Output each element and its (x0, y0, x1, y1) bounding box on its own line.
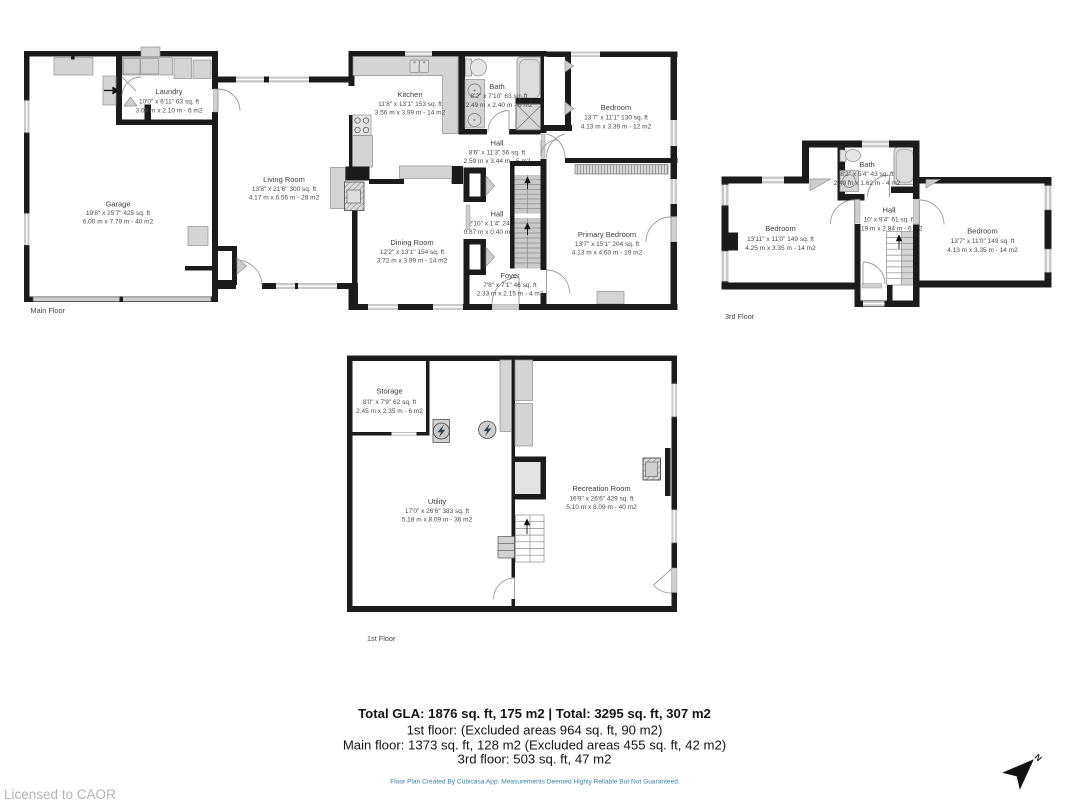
svg-text:Floor Plan Created By Cubicasa: Floor Plan Created By Cubicasa App. Meas… (390, 779, 680, 786)
svg-text:Living Room: Living Room (263, 175, 305, 184)
svg-text:3rd Floor: 3rd Floor (725, 312, 755, 321)
svg-text:13'7" x 11'1" 130 sq. ft: 13'7" x 11'1" 130 sq. ft (584, 115, 648, 122)
svg-text:19'8" x 25'7" 425 sq. ft: 19'8" x 25'7" 425 sq. ft (86, 210, 150, 217)
svg-text:Dining Room: Dining Room (390, 238, 433, 247)
svg-text:5.18 m x 8.09 m - 36 m2: 5.18 m x 8.09 m - 36 m2 (402, 517, 473, 524)
svg-text:6.00 m x 7.79 m - 40 m2: 6.00 m x 7.79 m - 40 m2 (83, 219, 154, 226)
svg-text:Recreation Room: Recreation Room (572, 484, 630, 493)
svg-text:Bedroom: Bedroom (601, 103, 631, 112)
svg-text:4.13 m x 4.60 m - 19 m2: 4.13 m x 4.60 m - 19 m2 (572, 250, 643, 257)
svg-text:Main Floor: Main Floor (31, 306, 66, 315)
svg-text:1st Floor: 1st Floor (367, 634, 396, 643)
svg-text:Primary Bedroom: Primary Bedroom (578, 230, 636, 239)
svg-text:2.45 m x 2.35 m - 6 m2: 2.45 m x 2.35 m - 6 m2 (356, 408, 423, 415)
svg-text:8'6" x 11'3" 56 sq. ft: 8'6" x 11'3" 56 sq. ft (469, 150, 526, 157)
svg-text:Bath: Bath (489, 82, 504, 91)
svg-text:Bedroom: Bedroom (765, 224, 795, 233)
svg-text:2.33 m x 2.15 m - 4 m2: 2.33 m x 2.15 m - 4 m2 (477, 291, 544, 298)
svg-text:4.13 m x 3.35 m - 14 m2: 4.13 m x 3.35 m - 14 m2 (947, 247, 1018, 254)
svg-text:8'2" x 7'10" 63 sq. ft: 8'2" x 7'10" 63 sq. ft (471, 93, 528, 100)
svg-text:13'8" x 21'6" 300 sq. ft: 13'8" x 21'6" 300 sq. ft (252, 186, 316, 193)
svg-text:4.17 m x 6.56 m - 28 m2: 4.17 m x 6.56 m - 28 m2 (249, 195, 320, 202)
svg-text:4.13 m x 3.39 m - 12 m2: 4.13 m x 3.39 m - 12 m2 (581, 124, 652, 131)
svg-text:3.56 m x 3.99 m - 14 m2: 3.56 m x 3.99 m - 14 m2 (375, 110, 446, 117)
svg-text:2.49 m x 2.40 m - 6 m2: 2.49 m x 2.40 m - 6 m2 (466, 102, 533, 109)
svg-text:Utility: Utility (428, 497, 447, 506)
svg-text:16'9" x 26'6" 429 sq. ft: 16'9" x 26'6" 429 sq. ft (569, 496, 633, 503)
svg-text:10' x 9'4" 61 sq. ft: 10' x 9'4" 61 sq. ft (863, 217, 914, 224)
svg-text:Kitchen: Kitchen (397, 90, 422, 99)
svg-text:13'11" x 11'0" 149 sq. ft: 13'11" x 11'0" 149 sq. ft (747, 236, 814, 243)
svg-text:13'7" x 15'1" 204 sq. ft: 13'7" x 15'1" 204 sq. ft (575, 241, 639, 248)
svg-text:3.04 m x 2.10 m - 6 m2: 3.04 m x 2.10 m - 6 m2 (136, 108, 203, 115)
svg-text:17'0" x 26'6" 383 sq. ft: 17'0" x 26'6" 383 sq. ft (405, 508, 469, 515)
svg-text:Laundry: Laundry (155, 87, 182, 96)
svg-text:Bedroom: Bedroom (967, 227, 997, 236)
svg-text:4.25 m x 3.35 m - 14 m2: 4.25 m x 3.35 m - 14 m2 (745, 245, 816, 252)
svg-text:Bath: Bath (859, 160, 874, 169)
svg-text:Storage: Storage (376, 387, 402, 396)
svg-text:10'0" x 6'11" 63 sq. ft: 10'0" x 6'11" 63 sq. ft (139, 99, 199, 106)
svg-text:Hall: Hall (491, 210, 504, 219)
svg-text:8'2" x 5'4" 43 sq. ft: 8'2" x 5'4" 43 sq. ft (840, 171, 894, 178)
svg-text:12'2" x 13'1" 154 sq. ft: 12'2" x 13'1" 154 sq. ft (380, 249, 444, 256)
svg-text:Hall: Hall (883, 206, 896, 215)
svg-text:7'8" x 7'1" 46 sq. ft: 7'8" x 7'1" 46 sq. ft (483, 282, 537, 289)
svg-text:1st floor: (Excluded areas 964: 1st floor: (Excluded areas 964 sq. ft, 9… (407, 722, 663, 737)
svg-text:Main floor: 1373 sq. ft, 128 m: Main floor: 1373 sq. ft, 128 m2 (Exclude… (343, 738, 726, 753)
svg-text:Foyer: Foyer (500, 271, 520, 280)
svg-text:Hall: Hall (491, 139, 504, 148)
svg-text:3rd floor: 503 sq. ft, 47 m2: 3rd floor: 503 sq. ft, 47 m2 (458, 752, 612, 767)
svg-text:5.10 m x 8.09 m - 40 m2: 5.10 m x 8.09 m - 40 m2 (566, 504, 637, 511)
svg-text:13'7" x 11'0" 149 sq. ft: 13'7" x 11'0" 149 sq. ft (951, 238, 1015, 245)
svg-text:Licensed to CAOR: Licensed to CAOR (4, 787, 116, 802)
svg-text:Total GLA: 1876 sq. ft, 175 m2: Total GLA: 1876 sq. ft, 175 m2 | Total: … (358, 706, 711, 721)
svg-text:2.49 m x 1.62 m - 4 m2: 2.49 m x 1.62 m - 4 m2 (834, 180, 901, 187)
svg-text:3.72 m x 3.99 m - 14 m2: 3.72 m x 3.99 m - 14 m2 (377, 258, 448, 265)
svg-text:8'0" x 7'9" 62 sq. ft: 8'0" x 7'9" 62 sq. ft (363, 399, 417, 406)
svg-text:Garage: Garage (105, 200, 130, 209)
svg-text:11'8" x 13'1" 153 sq. ft: 11'8" x 13'1" 153 sq. ft (378, 101, 442, 108)
